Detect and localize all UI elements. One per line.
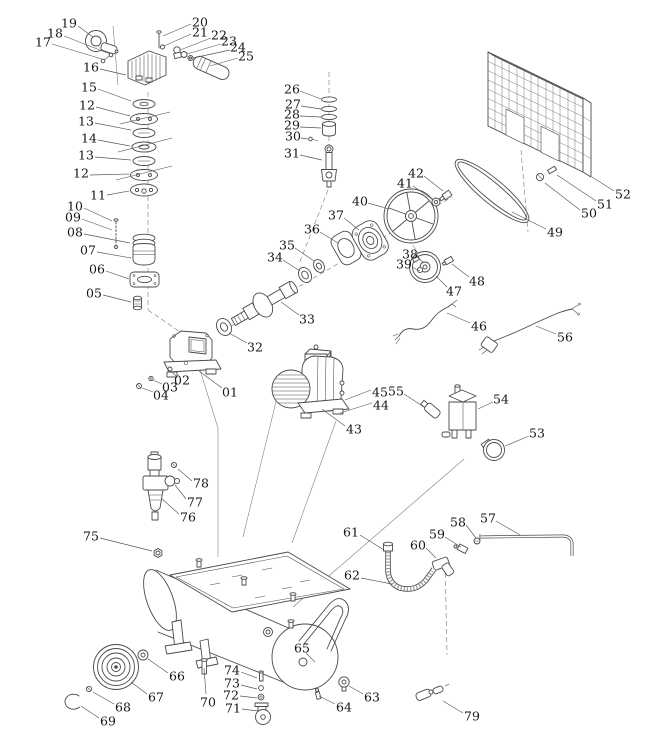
leader-line-63-79 [349, 686, 363, 694]
part-label-36-33: 36 [304, 222, 320, 237]
part-label-59-65: 59 [429, 527, 445, 542]
piston-pin [309, 137, 318, 141]
head-bolt [157, 31, 165, 49]
leader-line-68-70 [93, 692, 114, 704]
part-label-64-78: 64 [336, 700, 352, 715]
tank-platform [170, 552, 350, 628]
leader-line-56-47 [536, 326, 556, 334]
part-label-58-64: 58 [450, 515, 466, 530]
tank-legs [165, 620, 218, 668]
part-label-05-16: 05 [86, 286, 102, 301]
v-belt [448, 152, 535, 231]
wheel-washer [138, 650, 148, 660]
mount-nut [154, 549, 162, 558]
drain-stud [259, 671, 263, 681]
part-label-48-44: 48 [469, 274, 485, 289]
part-label-15-4: 15 [81, 80, 97, 95]
elbow-fitting [432, 557, 455, 577]
leader-line-79-80 [443, 701, 463, 713]
part-label-17-2: 17 [35, 35, 51, 50]
part-label-57-63: 57 [480, 511, 496, 526]
leader-line-72-75 [240, 696, 257, 698]
safety-valve-ring [339, 677, 349, 691]
part-label-41-30: 41 [397, 176, 413, 191]
leader-line-31-28 [300, 155, 322, 160]
oil-seal [296, 265, 314, 285]
leader-line-75-61 [100, 538, 152, 551]
drain-washers [258, 686, 264, 700]
part-label-69-71: 69 [100, 714, 116, 729]
leader-line-49-43 [512, 212, 546, 229]
pipe-fitting [454, 544, 468, 554]
leader-line-55-53 [404, 394, 424, 407]
part-label-06-15: 06 [89, 262, 105, 277]
leader-line-05-16 [103, 295, 131, 302]
leader-line-74-73 [241, 672, 257, 678]
leader-line-48-44 [452, 264, 469, 277]
drain-fitting [415, 684, 449, 701]
part-label-60-66: 60 [410, 538, 426, 553]
leader-line-12-9 [90, 174, 129, 175]
hub-cap [65, 694, 80, 709]
lock-nut [311, 258, 326, 275]
leader-line-09-12 [82, 219, 112, 230]
part-label-04-50: 04 [153, 388, 169, 403]
pulley-bolt [441, 256, 453, 266]
small-piston [323, 122, 336, 136]
muffler-tube [191, 54, 231, 81]
compression-rings [322, 97, 337, 120]
part-label-63-79: 63 [364, 690, 380, 705]
cylinder-gasket [130, 272, 159, 287]
part-label-26-23: 26 [284, 82, 300, 97]
leader-line-14-7 [98, 140, 130, 146]
part-label-13-8: 13 [78, 148, 94, 163]
cylinder-bolts [114, 219, 118, 249]
part-label-56-47: 56 [557, 330, 573, 345]
part-label-61-62: 61 [343, 525, 359, 540]
part-label-52-40: 52 [615, 187, 631, 202]
part-label-77-59: 77 [187, 495, 203, 510]
leader-line-69-71 [81, 706, 99, 718]
part-label-71-76: 71 [225, 701, 241, 716]
part-label-12-9: 12 [73, 166, 89, 181]
leader-line-67-69 [131, 682, 147, 694]
leader-line-52-40 [592, 177, 614, 191]
flywheel-bolt [439, 190, 452, 202]
part-label-70-72: 70 [200, 695, 216, 710]
pipe-nut [474, 538, 480, 544]
crankcase [164, 331, 221, 377]
wheel-screw [86, 686, 91, 691]
leader-line-78-58 [178, 469, 192, 481]
leader-line-46-46 [447, 313, 470, 323]
part-label-50-42: 50 [581, 206, 597, 221]
part-label-25-22: 25 [238, 49, 254, 64]
leader-line-64-78 [319, 696, 335, 704]
part-label-09-12: 09 [65, 210, 81, 225]
leader-line-71-76 [242, 709, 258, 711]
part-label-62-67: 62 [344, 568, 360, 583]
braided-discharge-hose [384, 542, 435, 589]
flywheel-washer [432, 198, 440, 206]
leader-line-58-64 [466, 525, 476, 538]
part-label-11-10: 11 [90, 188, 106, 203]
part-label-51-41: 51 [597, 197, 613, 212]
pressure-gauge [481, 439, 504, 460]
leader-line-53-57 [505, 436, 529, 446]
leader-line-04-50 [142, 388, 153, 392]
leader-line-45-52 [345, 390, 371, 400]
leader-line-20-17 [163, 24, 191, 36]
guard-screws [536, 166, 556, 180]
connecting-rod [322, 145, 337, 187]
diagram-canvas: 1918171615121314131211100908070605202122… [0, 0, 649, 755]
leader-line-60-66 [426, 548, 436, 558]
electric-motor [272, 345, 349, 418]
leader-line-16-3 [100, 69, 126, 75]
leader-line-13-8 [95, 157, 131, 160]
leader-line-28-25 [300, 116, 321, 117]
part-label-19-0: 19 [61, 16, 77, 31]
leader-line-12-5 [96, 107, 130, 116]
leader-line-37-32 [344, 218, 359, 230]
leader-line-61-62 [360, 535, 384, 550]
leader-line-11-10 [107, 191, 129, 195]
cylinder-head [128, 51, 166, 85]
part-label-65-77: 65 [294, 641, 310, 656]
part-label-16-3: 16 [83, 60, 99, 75]
part-label-39-37: 39 [396, 257, 412, 272]
part-label-44-54: 44 [373, 398, 389, 413]
leader-line-32-39 [229, 333, 247, 343]
part-label-53-57: 53 [529, 426, 545, 441]
caster-wheel [255, 703, 271, 725]
part-label-54-56: 54 [493, 392, 509, 407]
part-label-34-35: 34 [267, 250, 283, 265]
part-label-49-43: 49 [547, 225, 563, 240]
part-label-33-38: 33 [299, 312, 315, 327]
leader-line-59-65 [445, 537, 461, 547]
regulator-screw [171, 462, 176, 467]
part-label-21-18: 21 [192, 25, 208, 40]
part-label-68-70: 68 [115, 700, 131, 715]
leader-line-24-21 [193, 50, 230, 58]
part-label-43-55: 43 [346, 422, 362, 437]
leader-line-57-63 [496, 521, 520, 535]
part-label-13-6: 13 [78, 114, 94, 129]
power-cord-plug [479, 303, 581, 354]
exploded-parts-drawing: 1918171615121314131211100908070605202122… [0, 0, 649, 755]
part-label-40-31: 40 [352, 194, 368, 209]
part-label-46-46: 46 [471, 319, 487, 334]
leader-line-30-27 [301, 138, 308, 139]
part-label-30-27: 30 [285, 129, 301, 144]
part-label-66-68: 66 [169, 669, 185, 684]
leader-line-26-23 [300, 91, 321, 99]
belt-guard-grid [488, 52, 591, 177]
part-label-14-7: 14 [81, 131, 97, 146]
leader-line-33-38 [281, 302, 299, 315]
outlet-pipe [480, 535, 572, 557]
check-valve-fitting [419, 399, 441, 419]
leader-line-06-15 [106, 271, 129, 279]
part-label-37-32: 37 [328, 208, 344, 223]
leader-line-13-6 [95, 123, 131, 130]
part-label-76-60: 76 [180, 510, 196, 525]
part-label-67-69: 67 [148, 690, 164, 705]
leader-line-29-26 [300, 127, 321, 128]
oil-plug [134, 296, 142, 310]
crankshaft [227, 275, 302, 334]
leader-line-03-49 [153, 380, 162, 384]
leader-line-76-60 [162, 499, 179, 514]
pressure-switch [442, 385, 476, 438]
part-label-75-61: 75 [83, 529, 99, 544]
leader-line-42-29 [424, 176, 443, 191]
leader-line-66-68 [148, 659, 168, 673]
part-label-07-14: 07 [80, 243, 96, 258]
part-label-32-39: 32 [247, 340, 263, 355]
part-label-08-13: 08 [67, 225, 83, 240]
part-label-47-45: 47 [446, 284, 462, 299]
piston [133, 234, 155, 265]
leader-line-15-4 [98, 89, 131, 101]
leader-line-73-74 [241, 685, 257, 689]
flywheel [384, 189, 438, 243]
part-label-31-28: 31 [284, 146, 300, 161]
part-label-79-80: 79 [464, 709, 480, 724]
leader-line-34-35 [283, 260, 300, 271]
leader-line-07-14 [97, 252, 131, 258]
part-label-55-53: 55 [388, 384, 404, 399]
part-label-12-5: 12 [79, 98, 95, 113]
part-label-78-58: 78 [193, 476, 209, 491]
leader-line-27-24 [301, 106, 321, 109]
part-label-01-51: 01 [222, 385, 238, 400]
leg-bolt [315, 689, 321, 700]
leader-line-77-59 [175, 485, 186, 499]
leader-line-54-56 [478, 402, 493, 409]
motor-power-cord [393, 300, 457, 344]
leader-line-10-11 [84, 208, 112, 221]
leader-line-21-18 [164, 34, 191, 46]
